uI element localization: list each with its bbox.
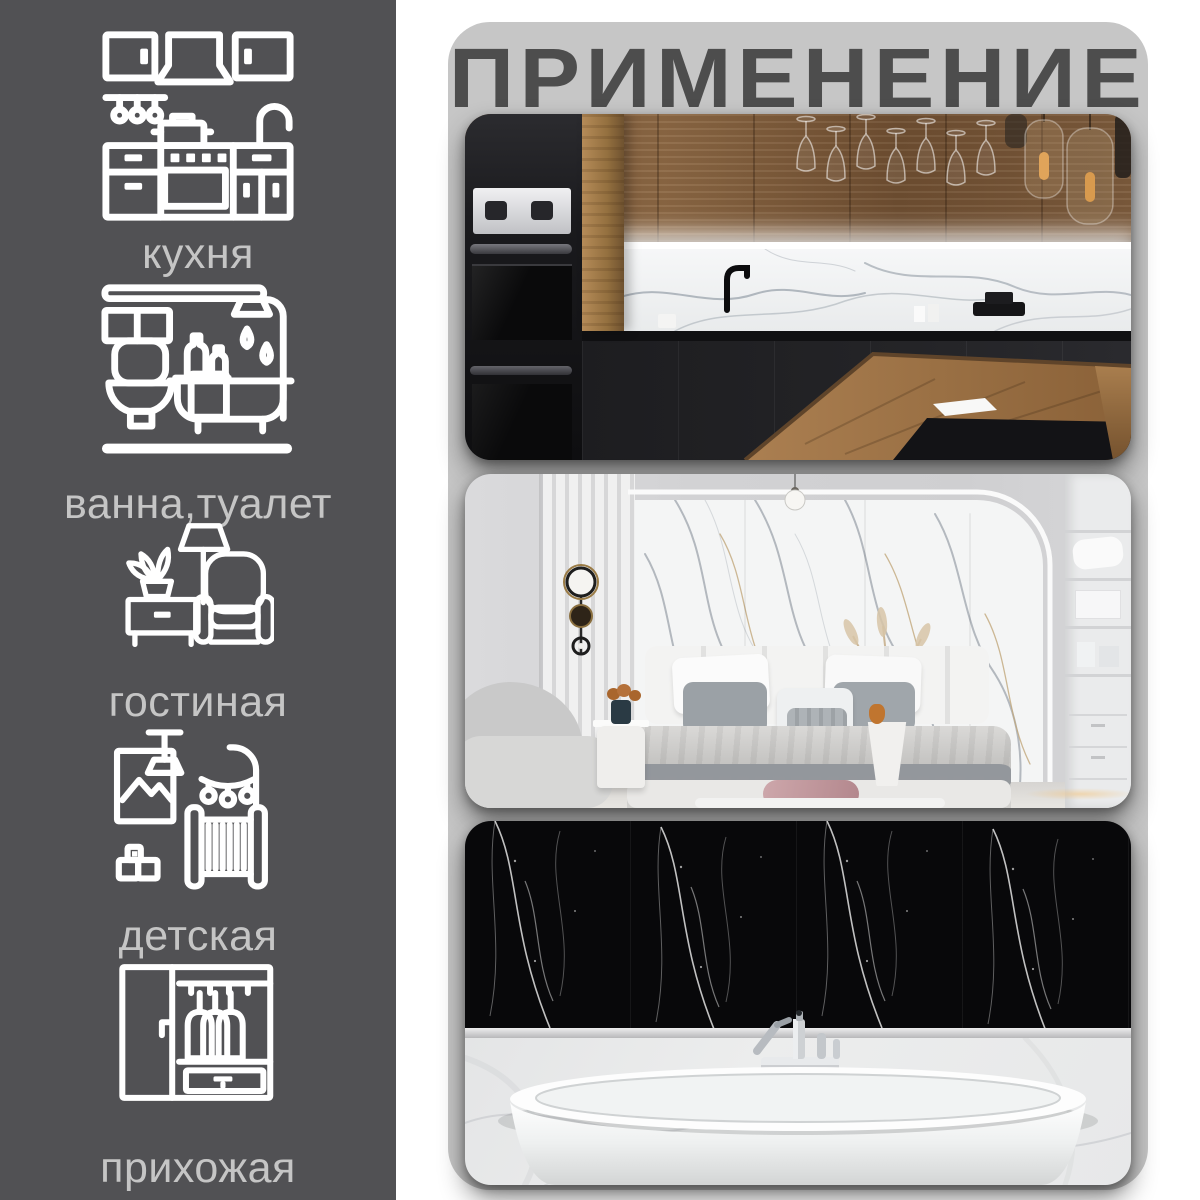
bedroom-photo [465, 474, 1131, 808]
sidebar-label-living-room: гостиная [109, 680, 288, 725]
sidebar-label-nursery: детская [119, 914, 278, 959]
kitchen-photo [465, 114, 1131, 460]
sidebar-item-kitchen: кухня [0, 28, 396, 277]
bathroom-icon [100, 280, 296, 476]
hallway-icon [112, 962, 284, 1134]
bedroom-shelf-unit [1065, 474, 1131, 808]
content-panel: ПРИМЕНЕНИЕ [448, 22, 1148, 1190]
sidebar-label-hallway: прихожая [100, 1146, 296, 1191]
kitchen-foreground [465, 114, 1131, 460]
sidebar-item-living-room: гостиная [0, 522, 396, 725]
living-room-icon [122, 522, 274, 674]
sidebar-label-kitchen: кухня [142, 232, 254, 277]
page-title: ПРИМЕНЕНИЕ [420, 36, 1176, 120]
infographic-root: кухня [0, 0, 1200, 1200]
sidebar-item-hallway: прихожая [0, 962, 396, 1191]
nursery-icon [110, 728, 286, 904]
sidebar-item-bathroom: ванна,туалет [0, 280, 396, 527]
sidebar: кухня [0, 0, 396, 1200]
sidebar-item-nursery: детская [0, 728, 396, 959]
bathroom-photo [465, 821, 1131, 1185]
flowers [607, 684, 643, 704]
sidebar-label-bathroom: ванна,туалет [64, 482, 332, 527]
kitchen-icon [100, 28, 296, 224]
bedside-table [597, 726, 645, 788]
bathtub [465, 821, 1131, 1185]
